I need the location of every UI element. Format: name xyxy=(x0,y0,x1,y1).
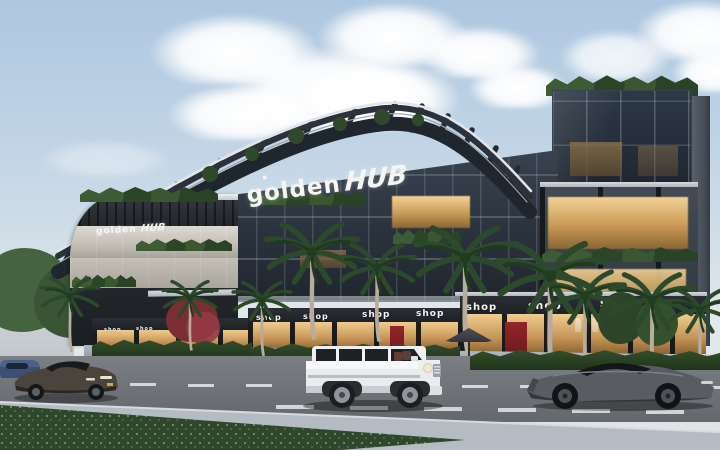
architectural-render-scene: goldenHUB goldenHUB shop shop shop shop … xyxy=(0,0,720,450)
dark-sports-car-right xyxy=(523,350,719,416)
palm-tree xyxy=(339,245,415,342)
dark-sports-car-left xyxy=(8,350,123,404)
white-suv-gclass xyxy=(298,334,448,414)
palm-tree xyxy=(41,278,99,352)
palm-tree xyxy=(163,282,217,351)
palm-tree xyxy=(233,282,291,356)
